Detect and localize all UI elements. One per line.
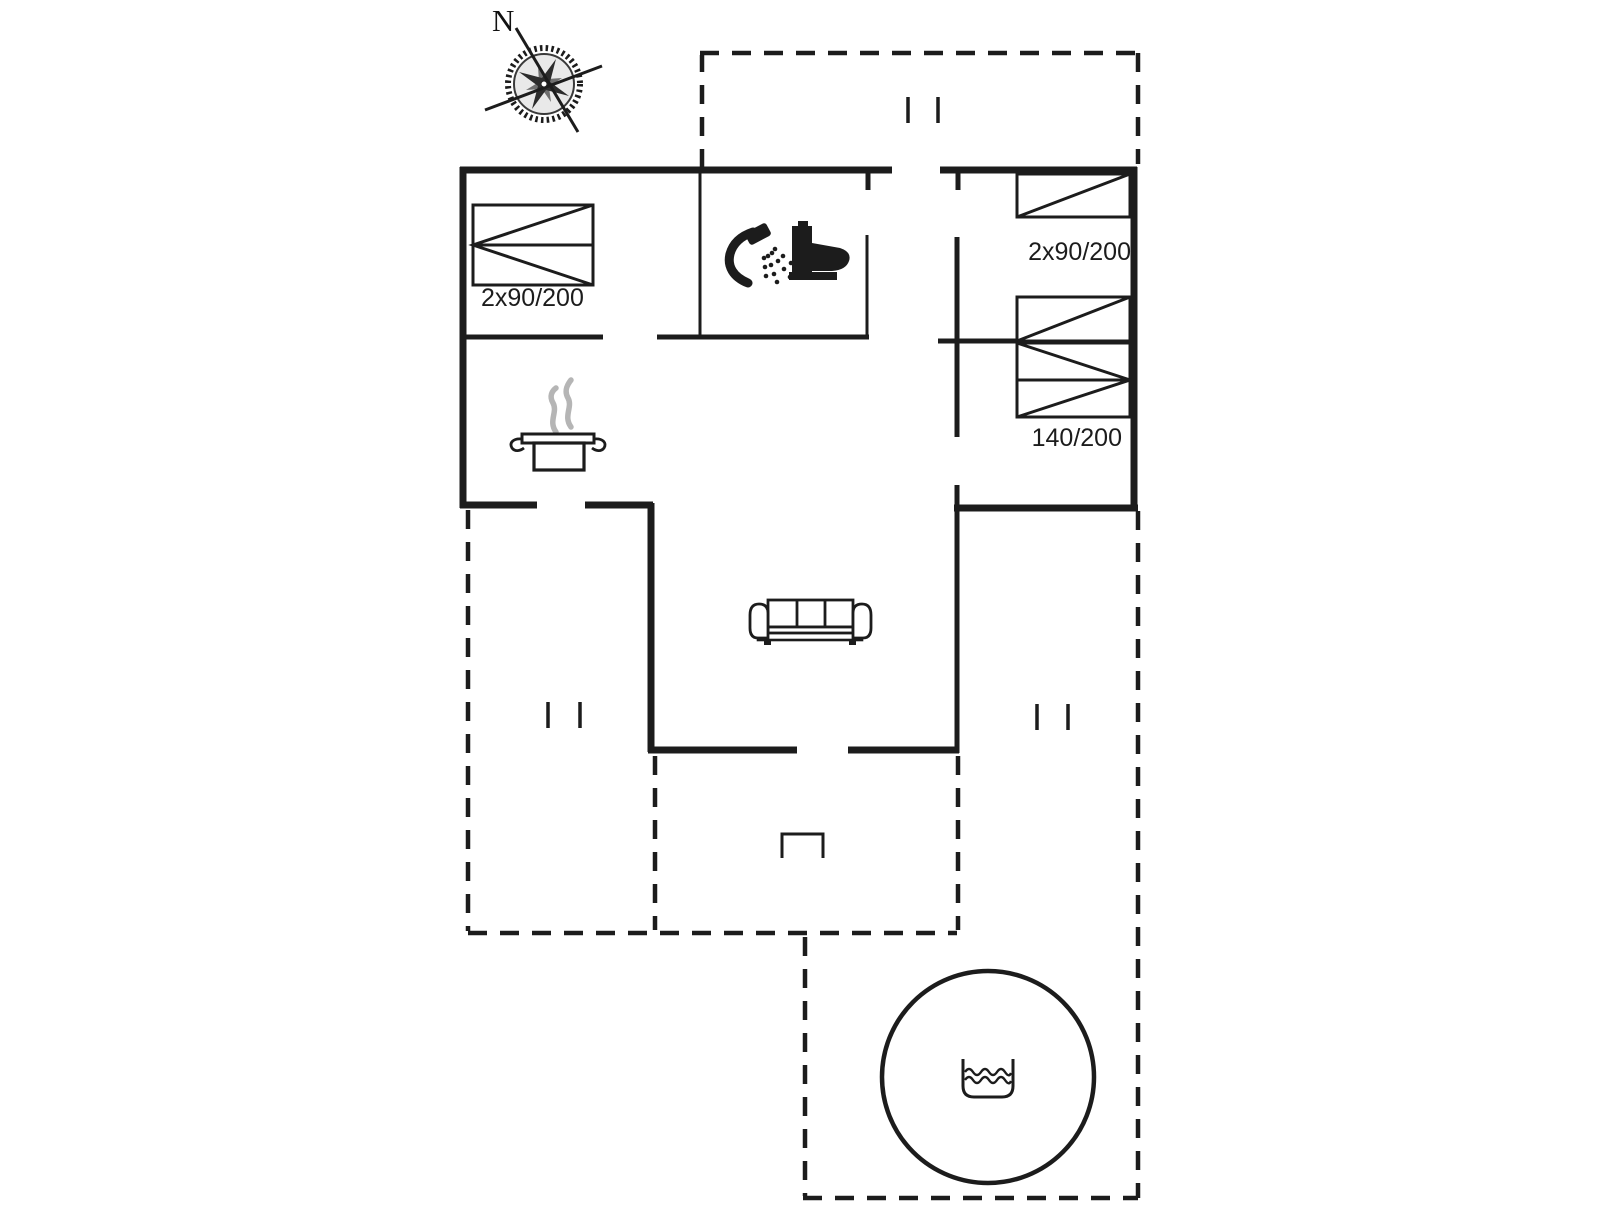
bed-double-left: 2x90/200 <box>473 205 593 312</box>
steam-wisp-left <box>551 388 556 432</box>
beds-single-right-top: 2x90/200 <box>1017 174 1131 341</box>
hot-tub-icon <box>882 971 1094 1183</box>
bed-label-right-bottom: 140/200 <box>1032 424 1122 452</box>
hot-tub-outline <box>882 971 1094 1183</box>
compass-north-label: N <box>492 3 514 38</box>
bed-double-right-bottom: 140/200 <box>1017 343 1130 452</box>
toilet-icon <box>789 221 850 280</box>
floor-plan-drawing: 2x90/200 2x90/200 140/200 <box>0 0 1606 1205</box>
compass-rose-icon: N <box>485 3 602 132</box>
steam-wisp-right <box>566 380 571 427</box>
bed-label-left: 2x90/200 <box>481 284 584 312</box>
terrace-step-mark <box>782 834 823 858</box>
bed-label-right-top: 2x90/200 <box>1028 238 1131 266</box>
cooking-pot-icon <box>511 380 605 470</box>
floor-plan: 2x90/200 2x90/200 140/200 <box>0 0 1606 1205</box>
sofa-icon <box>750 600 871 645</box>
